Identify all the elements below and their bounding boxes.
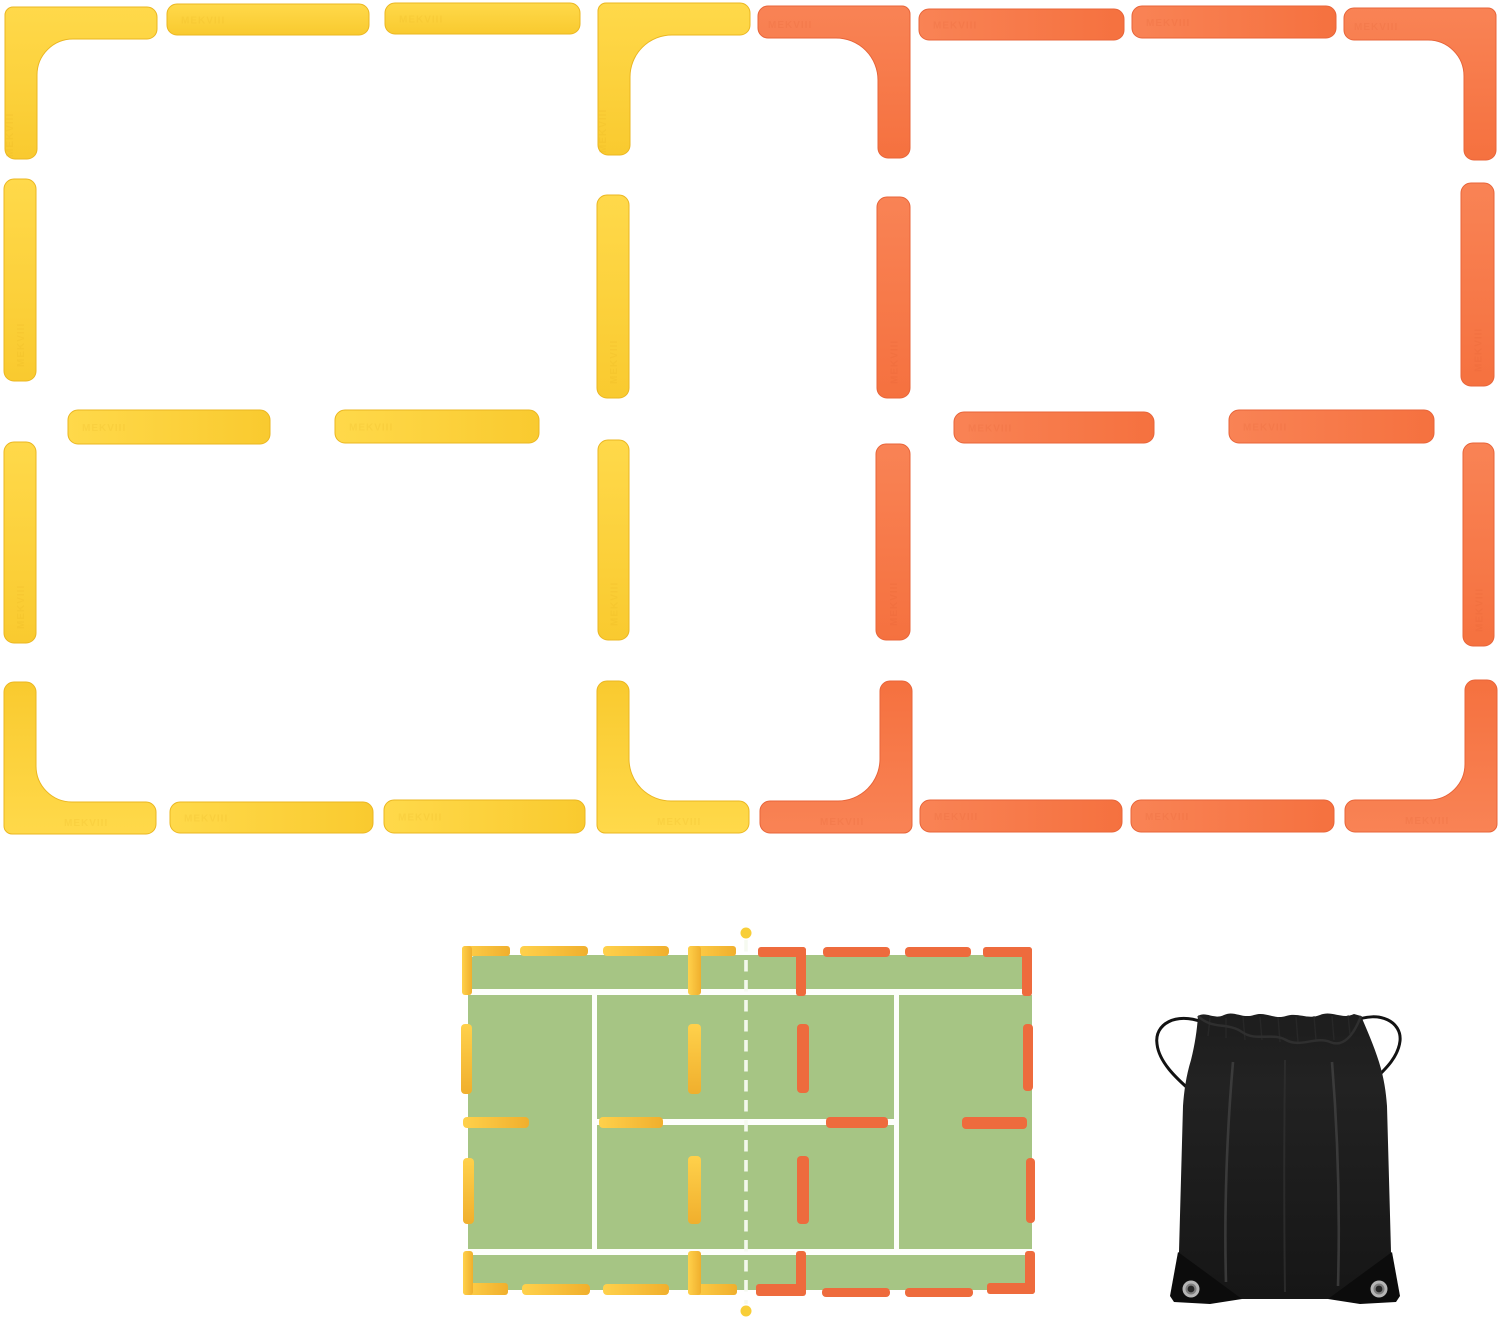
svg-text:MEKVIII: MEKVIII [399, 15, 443, 26]
svg-text:MEKVIII: MEKVIII [657, 817, 701, 828]
svg-text:MEKVIII: MEKVIII [16, 585, 27, 629]
svg-text:MEKVIII: MEKVIII [768, 20, 812, 31]
svg-text:MEKVIII: MEKVIII [64, 818, 108, 829]
svg-text:MEKVIII: MEKVIII [1405, 816, 1449, 827]
svg-text:MEKVIII: MEKVIII [820, 817, 864, 828]
svg-text:MEKVIII: MEKVIII [1146, 18, 1190, 29]
svg-text:MEKVIII: MEKVIII [934, 812, 978, 823]
svg-text:MEKVIII: MEKVIII [5, 113, 16, 157]
svg-text:MEKVIII: MEKVIII [933, 21, 977, 32]
svg-text:MEKVIII: MEKVIII [968, 424, 1012, 435]
svg-text:MEKVIII: MEKVIII [184, 814, 228, 825]
svg-text:MEKVIII: MEKVIII [16, 323, 27, 367]
svg-text:MEKVIII: MEKVIII [1243, 423, 1287, 434]
svg-text:MEKVIII: MEKVIII [609, 340, 620, 384]
svg-text:MEKVIII: MEKVIII [349, 423, 393, 434]
svg-text:MEKVIII: MEKVIII [1475, 588, 1486, 632]
svg-text:MEKVIII: MEKVIII [890, 340, 901, 384]
svg-text:MEKVIII: MEKVIII [181, 16, 225, 27]
svg-text:MEKVIII: MEKVIII [82, 423, 126, 434]
svg-text:MEKVIII: MEKVIII [1354, 22, 1398, 33]
svg-text:MEKVIII: MEKVIII [1474, 328, 1485, 372]
svg-text:MEKVIII: MEKVIII [598, 109, 609, 153]
svg-text:MEKVIII: MEKVIII [398, 813, 442, 824]
svg-text:MEKVIII: MEKVIII [1145, 812, 1189, 823]
svg-text:MEKVIII: MEKVIII [889, 582, 900, 626]
svg-text:MEKVIII: MEKVIII [610, 582, 621, 626]
